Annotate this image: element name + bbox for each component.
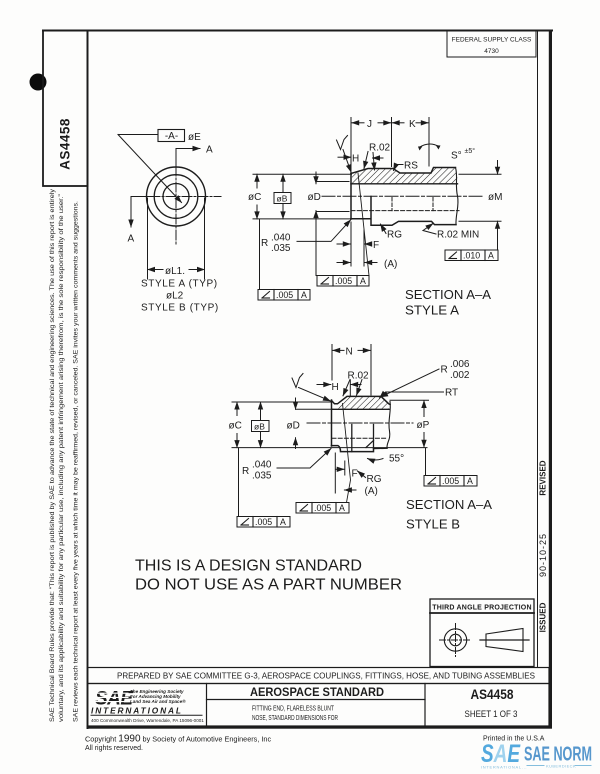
svg-text:SECTION A–A: SECTION A–A [405, 287, 491, 302]
svg-text:90-10-25: 90-10-25 [538, 533, 548, 577]
svg-text:øM: øM [488, 192, 502, 203]
svg-text:DO NOT USE AS A PART NUMBER: DO NOT USE AS A PART NUMBER [135, 577, 402, 594]
svg-text:(A): (A) [365, 486, 378, 497]
svg-text:STYLE B: STYLE B [406, 517, 460, 532]
svg-text:REVISED: REVISED [539, 460, 548, 495]
svg-text:INTERNATIONAL: INTERNATIONAL [91, 706, 181, 716]
svg-text:.006: .006 [450, 359, 470, 370]
svg-text:øL2: øL2 [166, 291, 184, 302]
svg-text:FEDERAL SUPPLY CLASS: FEDERAL SUPPLY CLASS [452, 37, 532, 44]
svg-text:A: A [467, 476, 473, 486]
svg-text:voluntary, and its applicabili: voluntary, and its applicability and sui… [58, 194, 65, 722]
svg-text:400 Commonwealth Drive, Warren: 400 Commonwealth Drive, Warrendale, PA 1… [91, 718, 204, 723]
svg-text:R.02: R.02 [348, 371, 370, 382]
svg-text:øC: øC [229, 421, 242, 432]
svg-text:H: H [332, 382, 339, 393]
svg-text:K: K [409, 119, 416, 130]
svg-text:A: A [280, 517, 286, 527]
svg-text:.002: .002 [450, 370, 470, 381]
svg-text:-A-: -A- [165, 131, 178, 142]
svg-text:A: A [206, 145, 213, 156]
svg-text:R: R [261, 238, 268, 249]
svg-text:RG: RG [367, 474, 382, 485]
svg-text:All rights reserved.: All rights reserved. [85, 745, 143, 752]
svg-text:A: A [488, 251, 494, 261]
svg-text:.035: .035 [252, 471, 272, 482]
svg-text:4730: 4730 [484, 48, 499, 55]
svg-text:THIRD ANGLE PROJECTION: THIRD ANGLE PROJECTION [432, 605, 531, 612]
svg-text:F: F [352, 469, 358, 480]
svg-text:ISSUED: ISSUED [539, 602, 548, 632]
svg-text:øD: øD [308, 192, 321, 203]
svg-text:J: J [367, 119, 372, 130]
svg-text:R: R [242, 466, 249, 477]
svg-text:øB: øB [254, 422, 265, 432]
svg-text:øP: øP [417, 420, 430, 431]
svg-text:STYLE B (TYP): STYLE B (TYP) [141, 303, 219, 314]
svg-text:H: H [352, 154, 359, 165]
svg-text:A: A [128, 234, 135, 245]
svg-text:N: N [346, 347, 353, 358]
svg-text:SAE Technical Board Rules prov: SAE Technical Board Rules provide that: … [49, 188, 56, 722]
svg-text:A: A [339, 503, 345, 513]
svg-text:SAE reviews each technical rep: SAE reviews each technical report at lea… [73, 201, 80, 722]
svg-text:INTERNATIONAL...: INTERNATIONAL... [481, 765, 527, 770]
svg-text:AS4458: AS4458 [58, 118, 73, 170]
svg-text:SECTION A–A: SECTION A–A [406, 497, 492, 512]
svg-text:.005: .005 [276, 290, 293, 300]
svg-text:Copyright 1990 by Society of A: Copyright 1990 by Society of Automotive … [85, 734, 271, 745]
svg-text:A: A [301, 290, 307, 300]
svg-text:.010: .010 [463, 251, 480, 261]
svg-text:R: R [441, 365, 448, 376]
svg-text:.005: .005 [255, 517, 272, 527]
svg-text:øC: øC [248, 192, 261, 203]
svg-text:R.02: R.02 [369, 143, 391, 154]
svg-text:F: F [373, 240, 379, 251]
svg-text:S°: S° [451, 151, 462, 162]
svg-text:.035: .035 [271, 243, 291, 254]
svg-text:A: A [360, 276, 366, 286]
svg-text:Land Sea Air and Space®: Land Sea Air and Space® [130, 698, 186, 704]
svg-text:THIS IS A DESIGN STANDARD: THIS IS A DESIGN STANDARD [135, 558, 362, 575]
svg-text:SHEET 1 OF 3: SHEET 1 OF 3 [465, 709, 518, 720]
svg-text:RS: RS [404, 161, 418, 172]
svg-text:(A): (A) [384, 259, 397, 270]
svg-text:NOSE, STANDARD DIMENSIONS FOR: NOSE, STANDARD DIMENSIONS FOR [252, 713, 338, 722]
svg-text:RG: RG [387, 230, 402, 241]
svg-text:øL1.: øL1. [165, 266, 185, 277]
svg-text:PREPARED BY SAE COMMITTEE G-3,: PREPARED BY SAE COMMITTEE G-3, AEROSPACE… [117, 671, 535, 681]
svg-text:55°: 55° [389, 454, 404, 465]
svg-text:FITTING END, FLARELESS BLUNT: FITTING END, FLARELESS BLUNT [252, 704, 334, 713]
svg-text:STYLE A: STYLE A [405, 303, 459, 318]
svg-text:øB: øB [277, 194, 288, 204]
svg-text:KUBERDIECK: KUBERDIECK [546, 764, 576, 769]
svg-text:.040: .040 [271, 233, 291, 244]
svg-text:øD: øD [287, 421, 300, 432]
svg-text:AEROSPACE STANDARD: AEROSPACE STANDARD [250, 685, 384, 699]
svg-text:.005: .005 [442, 476, 459, 486]
svg-text:R.02 MIN: R.02 MIN [437, 230, 479, 241]
svg-text:RT: RT [445, 388, 458, 399]
svg-text:SAE NORM: SAE NORM [524, 744, 592, 766]
svg-text:AS4458: AS4458 [471, 686, 514, 702]
svg-text:.040: .040 [252, 460, 272, 471]
svg-text:.005: .005 [314, 503, 331, 513]
svg-text:øE: øE [188, 132, 201, 143]
svg-text:±5°: ±5° [465, 147, 476, 155]
svg-text:.005: .005 [335, 276, 352, 286]
svg-text:STYLE A (TYP): STYLE A (TYP) [141, 279, 218, 290]
